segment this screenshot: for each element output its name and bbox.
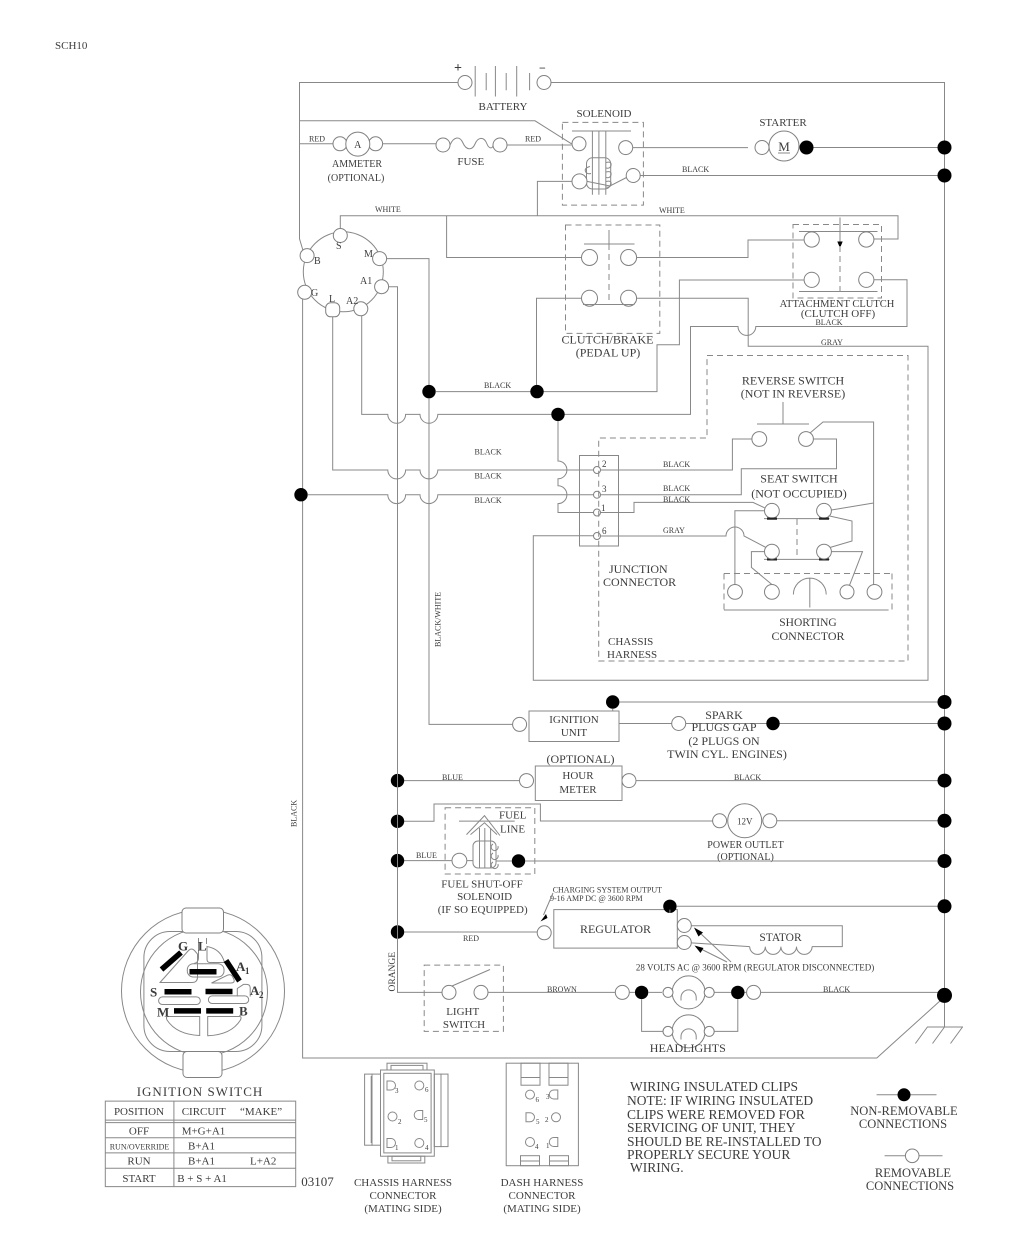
svg-text:BLACK: BLACK — [663, 484, 690, 493]
svg-text:3: 3 — [395, 1087, 399, 1095]
svg-text:M+G+A1: M+G+A1 — [182, 1126, 226, 1138]
svg-text:RUN: RUN — [127, 1156, 150, 1168]
svg-text:G: G — [178, 939, 188, 954]
svg-text:BLACK: BLACK — [475, 472, 502, 481]
svg-text:4: 4 — [425, 1144, 429, 1152]
svg-text:6: 6 — [602, 526, 607, 536]
svg-text:M: M — [778, 139, 790, 154]
svg-text:SEAT SWITCH: SEAT SWITCH — [760, 472, 838, 486]
svg-text:(NOT OCCUPIED): (NOT OCCUPIED) — [751, 487, 846, 501]
svg-text:6: 6 — [536, 1096, 540, 1104]
svg-text:1: 1 — [601, 503, 606, 513]
svg-text:REMOVABLE: REMOVABLE — [875, 1166, 952, 1180]
svg-text:NON-REMOVABLE: NON-REMOVABLE — [850, 1104, 958, 1118]
svg-text:CONNECTOR: CONNECTOR — [508, 1190, 576, 1202]
svg-text:6: 6 — [425, 1086, 429, 1094]
svg-text:2: 2 — [545, 1116, 549, 1124]
svg-text:START: START — [122, 1173, 156, 1185]
svg-text:L: L — [329, 294, 335, 305]
svg-text:G: G — [311, 288, 318, 299]
svg-text:FUEL: FUEL — [499, 810, 527, 822]
svg-text:SWITCH: SWITCH — [443, 1019, 485, 1031]
svg-text:1: 1 — [395, 1144, 399, 1152]
svg-text:CONNECTOR: CONNECTOR — [603, 575, 676, 589]
svg-text:SOLENOID: SOLENOID — [457, 891, 512, 903]
svg-text:BLACK: BLACK — [823, 985, 850, 994]
svg-text:ORANGE: ORANGE — [388, 952, 398, 992]
svg-text:BATTERY: BATTERY — [479, 101, 528, 113]
svg-text:HOUR: HOUR — [562, 770, 594, 782]
svg-text:BLUE: BLUE — [416, 851, 437, 860]
svg-text:−: − — [539, 61, 546, 75]
svg-text:03107: 03107 — [301, 1174, 334, 1189]
svg-text:BLACK: BLACK — [475, 496, 502, 505]
svg-text:+: + — [454, 61, 462, 76]
svg-text:CONNECTIONS: CONNECTIONS — [859, 1117, 947, 1131]
svg-text:4: 4 — [535, 1143, 539, 1151]
svg-text:9-16 AMP DC @ 3600 RPM: 9-16 AMP DC @ 3600 RPM — [550, 894, 643, 903]
svg-text:(NOT IN REVERSE): (NOT IN REVERSE) — [741, 387, 845, 401]
svg-text:GRAY: GRAY — [821, 338, 843, 347]
svg-text:PLUGS GAP: PLUGS GAP — [691, 720, 756, 734]
svg-text:5: 5 — [536, 1118, 540, 1126]
svg-text:SHORTING: SHORTING — [779, 617, 836, 629]
svg-text:2: 2 — [602, 459, 607, 469]
svg-text:NOTE: IF WIRING INSULATED: NOTE: IF WIRING INSULATED — [627, 1093, 813, 1108]
svg-text:B: B — [314, 256, 321, 267]
svg-text:RED: RED — [463, 934, 479, 943]
svg-text:POWER OUTLET: POWER OUTLET — [707, 840, 783, 851]
svg-text:BLACK: BLACK — [290, 800, 299, 827]
svg-text:BLACK: BLACK — [815, 318, 842, 327]
svg-text:2: 2 — [398, 1118, 402, 1126]
svg-text:A1: A1 — [360, 276, 372, 287]
svg-text:BLACK: BLACK — [663, 495, 690, 504]
svg-text:BLACK: BLACK — [475, 448, 502, 457]
svg-text:RED: RED — [525, 135, 541, 144]
svg-text:B+A1: B+A1 — [188, 1156, 215, 1168]
svg-text:A2: A2 — [346, 296, 358, 307]
svg-text:L+A2: L+A2 — [250, 1156, 276, 1168]
svg-text:GRAY: GRAY — [663, 526, 685, 535]
svg-text:B: B — [239, 1004, 248, 1019]
svg-text:IGNITION SWITCH: IGNITION SWITCH — [137, 1084, 264, 1099]
svg-text:M: M — [157, 1004, 169, 1019]
svg-text:HARNESS: HARNESS — [607, 649, 657, 661]
svg-text:CONNECTOR: CONNECTOR — [369, 1190, 437, 1202]
svg-text:S: S — [336, 241, 342, 252]
svg-text:3: 3 — [602, 484, 607, 494]
svg-text:CONNECTOR: CONNECTOR — [771, 629, 844, 643]
svg-text:BLACK: BLACK — [484, 381, 511, 390]
svg-text:WHITE: WHITE — [375, 205, 401, 214]
svg-text:(OPTIONAL): (OPTIONAL) — [328, 173, 385, 184]
svg-text:1: 1 — [245, 966, 250, 976]
svg-text:28 VOLTS AC @ 3600 RPM (REGULA: 28 VOLTS AC @ 3600 RPM (REGULATOR DISCON… — [636, 963, 874, 973]
svg-text:(OPTIONAL): (OPTIONAL) — [547, 752, 615, 766]
svg-text:L: L — [198, 939, 207, 954]
svg-text:FUEL SHUT-OFF: FUEL SHUT-OFF — [441, 879, 522, 891]
svg-text:STATOR: STATOR — [759, 932, 802, 944]
svg-text:SCH10: SCH10 — [55, 40, 88, 52]
svg-text:“MAKE”: “MAKE” — [240, 1106, 282, 1118]
svg-text:DASH HARNESS: DASH HARNESS — [501, 1177, 584, 1189]
svg-text:JUNCTION: JUNCTION — [609, 562, 668, 576]
svg-text:BLACK: BLACK — [734, 773, 761, 782]
svg-text:LIGHT: LIGHT — [446, 1006, 479, 1018]
svg-text:(MATING SIDE): (MATING SIDE) — [364, 1203, 442, 1215]
svg-text:B+A1: B+A1 — [188, 1141, 215, 1153]
svg-text:1: 1 — [546, 1142, 550, 1150]
svg-text:CLUTCH/BRAKE: CLUTCH/BRAKE — [561, 333, 653, 347]
svg-text:CONNECTIONS: CONNECTIONS — [866, 1179, 954, 1193]
svg-text:UNIT: UNIT — [561, 727, 588, 739]
svg-text:RUN/OVERRIDE: RUN/OVERRIDE — [110, 1143, 170, 1152]
svg-text:WIRING INSULATED CLIPS: WIRING INSULATED CLIPS — [630, 1079, 798, 1094]
svg-text:3: 3 — [546, 1093, 550, 1101]
svg-text:HEADLIGHTS: HEADLIGHTS — [650, 1041, 726, 1055]
svg-text:BLACK: BLACK — [682, 165, 709, 174]
svg-text:SOLENOID: SOLENOID — [577, 108, 632, 120]
svg-text:OFF: OFF — [129, 1126, 149, 1138]
svg-text:METER: METER — [559, 784, 597, 796]
svg-text:(2 PLUGS ON: (2 PLUGS ON — [688, 734, 760, 748]
svg-text:STARTER: STARTER — [759, 117, 807, 129]
svg-text:FUSE: FUSE — [457, 156, 484, 168]
svg-text:TWIN CYL. ENGINES): TWIN CYL. ENGINES) — [667, 747, 787, 761]
svg-text:AMMETER: AMMETER — [332, 159, 382, 170]
svg-text:(PEDAL UP): (PEDAL UP) — [576, 346, 641, 360]
svg-text:IGNITION: IGNITION — [549, 714, 599, 726]
svg-text:S: S — [150, 985, 157, 1000]
svg-text:SERVICING OF UNIT, THEY: SERVICING OF UNIT, THEY — [627, 1120, 796, 1135]
svg-text:CIRCUIT: CIRCUIT — [182, 1106, 226, 1118]
svg-text:12V: 12V — [737, 817, 753, 827]
svg-text:2: 2 — [259, 990, 264, 1000]
svg-text:BLACK: BLACK — [663, 460, 690, 469]
svg-text:5: 5 — [424, 1116, 428, 1124]
svg-text:BLACK/WHITE: BLACK/WHITE — [434, 592, 443, 647]
svg-text:REGULATOR: REGULATOR — [580, 922, 651, 936]
svg-text:BLUE: BLUE — [442, 773, 463, 782]
svg-text:CHASSIS HARNESS: CHASSIS HARNESS — [354, 1177, 452, 1189]
svg-text:LINE: LINE — [500, 824, 525, 836]
svg-text:WHITE: WHITE — [659, 206, 685, 215]
svg-text:WIRING.: WIRING. — [630, 1160, 684, 1175]
svg-text:M: M — [364, 249, 373, 260]
svg-text:A: A — [354, 140, 362, 151]
svg-text:B + S + A1: B + S + A1 — [177, 1173, 227, 1185]
svg-text:RED: RED — [309, 135, 325, 144]
svg-text:(IF SO EQUIPPED): (IF SO EQUIPPED) — [438, 904, 528, 916]
svg-text:CHASSIS: CHASSIS — [608, 636, 653, 648]
svg-text:REVERSE SWITCH: REVERSE SWITCH — [742, 374, 845, 388]
svg-text:(MATING SIDE): (MATING SIDE) — [503, 1203, 581, 1215]
svg-text:BROWN: BROWN — [547, 985, 577, 994]
svg-text:POSITION: POSITION — [114, 1106, 164, 1118]
